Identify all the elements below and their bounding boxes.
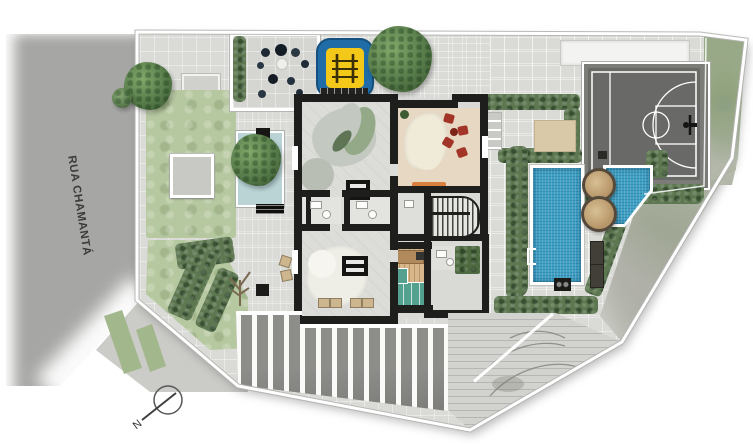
pouf <box>257 62 264 69</box>
climbing-frame-icon <box>326 48 364 88</box>
pouf <box>291 48 300 57</box>
pouf <box>301 60 309 68</box>
garden-bench <box>256 204 284 214</box>
site-plan: RUA CHAMANTÁ <box>0 0 753 444</box>
door-gap <box>330 190 342 197</box>
pool-hedge-west <box>506 146 528 298</box>
armchair-red <box>457 125 468 136</box>
court-markings <box>588 68 700 180</box>
window <box>292 146 298 170</box>
pad-square <box>170 154 214 198</box>
pergola-rail <box>236 311 302 315</box>
rug-round <box>300 158 334 192</box>
dry-tree <box>226 258 256 310</box>
toilet <box>322 210 331 219</box>
toilet <box>368 210 377 219</box>
play-table-top <box>350 184 366 188</box>
pool-ladder-icon <box>527 248 536 265</box>
pool-hedge-south <box>494 296 598 314</box>
toilet <box>446 258 454 266</box>
hedge-terrace <box>233 36 246 102</box>
basketball-hoop-icon <box>683 115 697 135</box>
barbecue-grill <box>554 278 571 291</box>
sink <box>436 250 447 258</box>
play-table-top <box>346 260 364 264</box>
window <box>292 250 298 274</box>
wall-segment <box>394 100 458 108</box>
wall-segment <box>398 234 428 241</box>
pergola-rail <box>300 324 450 328</box>
play-table-top <box>346 268 364 272</box>
window <box>482 136 488 158</box>
planter-box <box>455 246 480 274</box>
pouf <box>261 48 270 57</box>
wall-segment <box>482 234 489 318</box>
pouf <box>268 74 278 84</box>
tree <box>112 88 132 108</box>
tree <box>124 62 172 110</box>
staircase <box>430 196 480 238</box>
sand-pad <box>534 120 576 152</box>
kids-chair <box>318 298 330 308</box>
door-gap <box>330 224 342 231</box>
pouf <box>258 90 266 98</box>
rug-cream-lobe <box>412 140 442 170</box>
wall-segment <box>394 186 486 193</box>
fire-pit <box>256 284 269 296</box>
wall-segment <box>294 94 302 330</box>
sun-lounger <box>590 264 604 288</box>
plant-pot <box>400 110 409 119</box>
sink <box>404 200 414 208</box>
terrace-plants <box>470 318 620 418</box>
pouf <box>287 77 295 85</box>
kids-chair <box>362 298 374 308</box>
tree <box>231 134 281 186</box>
kids-chair <box>330 298 342 308</box>
kids-chair <box>350 298 362 308</box>
pouf-white <box>276 58 288 70</box>
dry-tree-branches <box>230 272 250 306</box>
sink <box>310 201 322 209</box>
main-pool <box>530 165 584 285</box>
wall-segment <box>306 190 311 229</box>
plant-pot <box>598 151 607 159</box>
wall-segment <box>390 305 433 313</box>
play-table <box>342 256 368 276</box>
door-gap <box>390 250 398 262</box>
tree <box>368 26 432 92</box>
pouf <box>275 44 287 56</box>
wall-segment <box>344 190 350 229</box>
wall-segment <box>390 242 432 249</box>
wall-segment <box>296 94 396 102</box>
door-gap <box>390 164 398 176</box>
wall-segment <box>390 94 398 326</box>
stair-divider <box>430 212 470 215</box>
sun-lounger <box>590 241 604 265</box>
sink <box>356 201 368 209</box>
north-arrow: N <box>128 378 198 434</box>
rug-white-circle <box>308 250 336 278</box>
north-arrow-needle <box>142 393 176 420</box>
daybed <box>581 196 617 232</box>
